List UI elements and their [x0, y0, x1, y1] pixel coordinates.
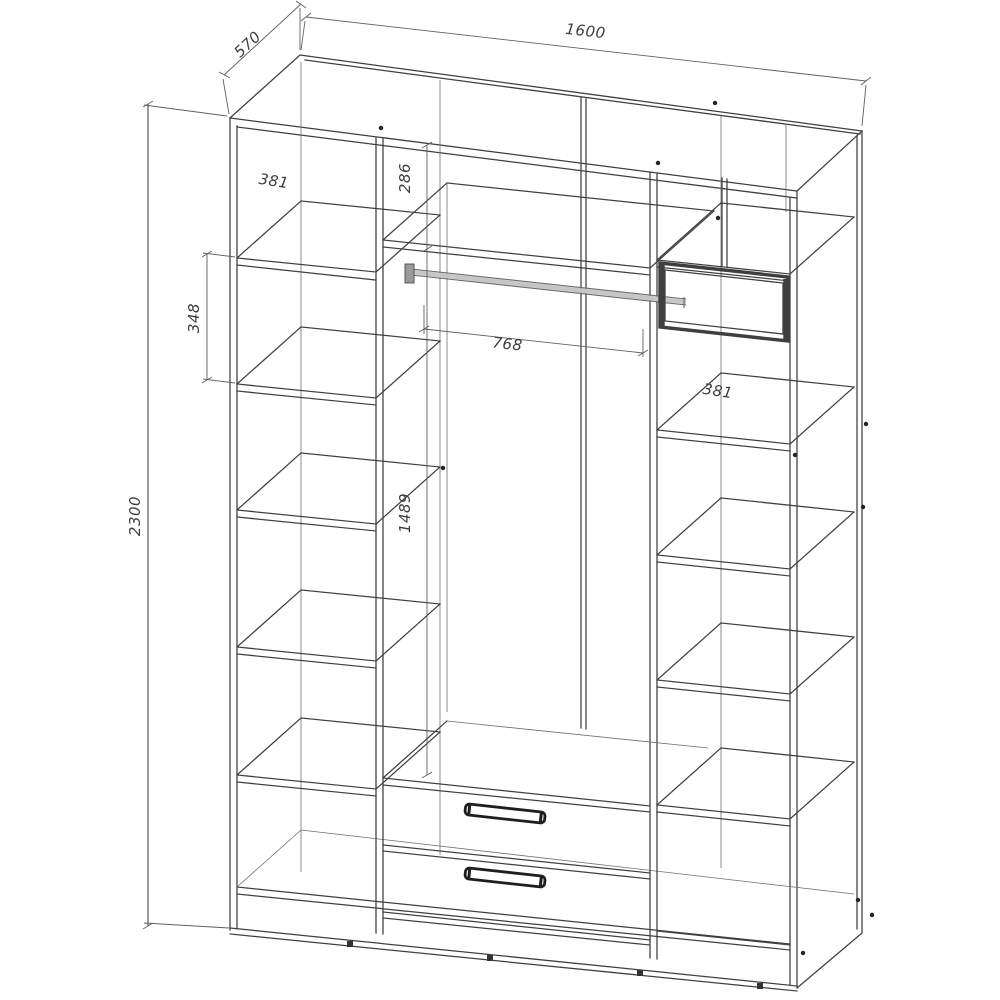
dowel-dots — [379, 101, 874, 955]
dimension-depth: 570 — [219, 1, 306, 114]
drawer-1-handle — [465, 804, 546, 824]
dim-middle-width-label: 768 — [492, 333, 524, 354]
dim-hanging-height-label: 1489 — [396, 493, 414, 533]
drawer-1 — [383, 804, 650, 879]
wardrobe-technical-drawing: 2300 1600 570 348 286 1489 768 381 381 — [0, 0, 1000, 1000]
dim-right-shelf-width-label: 381 — [701, 380, 734, 402]
dimension-height: 2300 — [126, 101, 229, 929]
dim-height-label: 2300 — [126, 496, 144, 536]
dim-left-shelf-width-label: 381 — [257, 170, 290, 192]
drawing-canvas: 2300 1600 570 348 286 1489 768 381 381 — [0, 0, 1000, 1000]
right-column-shelves — [657, 178, 854, 945]
drawer-2-handle — [465, 868, 546, 888]
dim-depth-label: 570 — [230, 27, 264, 61]
dimension-shelf-pitch: 348 — [185, 251, 235, 383]
dim-shelf-pitch-label: 348 — [185, 303, 203, 333]
carcass-outline — [230, 55, 862, 991]
dimension-middle-width: 768 — [419, 305, 648, 357]
dim-top-shelf-label: 286 — [396, 163, 414, 193]
dim-width-label: 1600 — [565, 20, 607, 42]
rod-bracket — [405, 264, 414, 283]
